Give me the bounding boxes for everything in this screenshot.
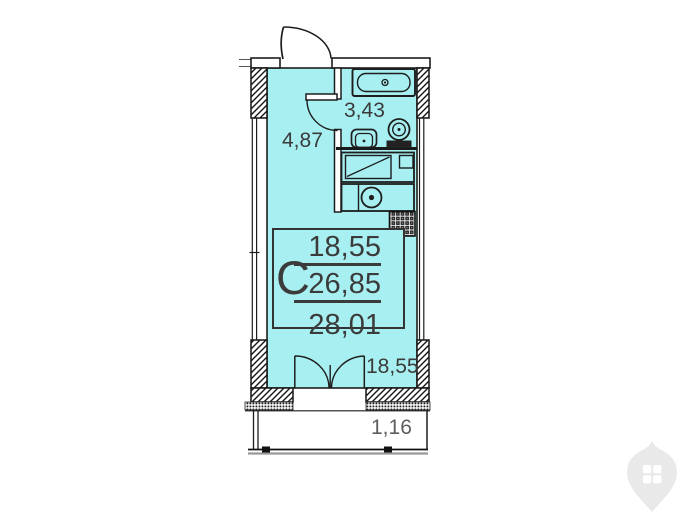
unit-type-letter: С <box>276 254 310 301</box>
bottom-wall <box>251 388 429 402</box>
developer-logo-watermark <box>621 440 683 514</box>
balcony-area-label: 1,16 <box>371 416 412 440</box>
total-with-balcony-value: 28,01 <box>308 311 381 340</box>
floor-plan-canvas: 3,43 4,87 18,55 1,16 С 18,55 26,85 28,01 <box>0 0 688 516</box>
living-room-area-label: 18,55 <box>366 355 419 379</box>
interior-wall <box>335 68 342 212</box>
hall-area-label: 4,87 <box>282 129 323 153</box>
window-left <box>250 118 260 340</box>
drop-shield-logo-icon <box>621 440 683 514</box>
entrance-door <box>281 27 331 59</box>
unit-info-card: С 18,55 26,85 28,01 <box>272 228 405 329</box>
balcony-parapet <box>245 402 430 410</box>
window-right <box>420 118 424 340</box>
bathroom-area-label: 3,43 <box>344 99 385 123</box>
top-wall <box>239 58 430 68</box>
